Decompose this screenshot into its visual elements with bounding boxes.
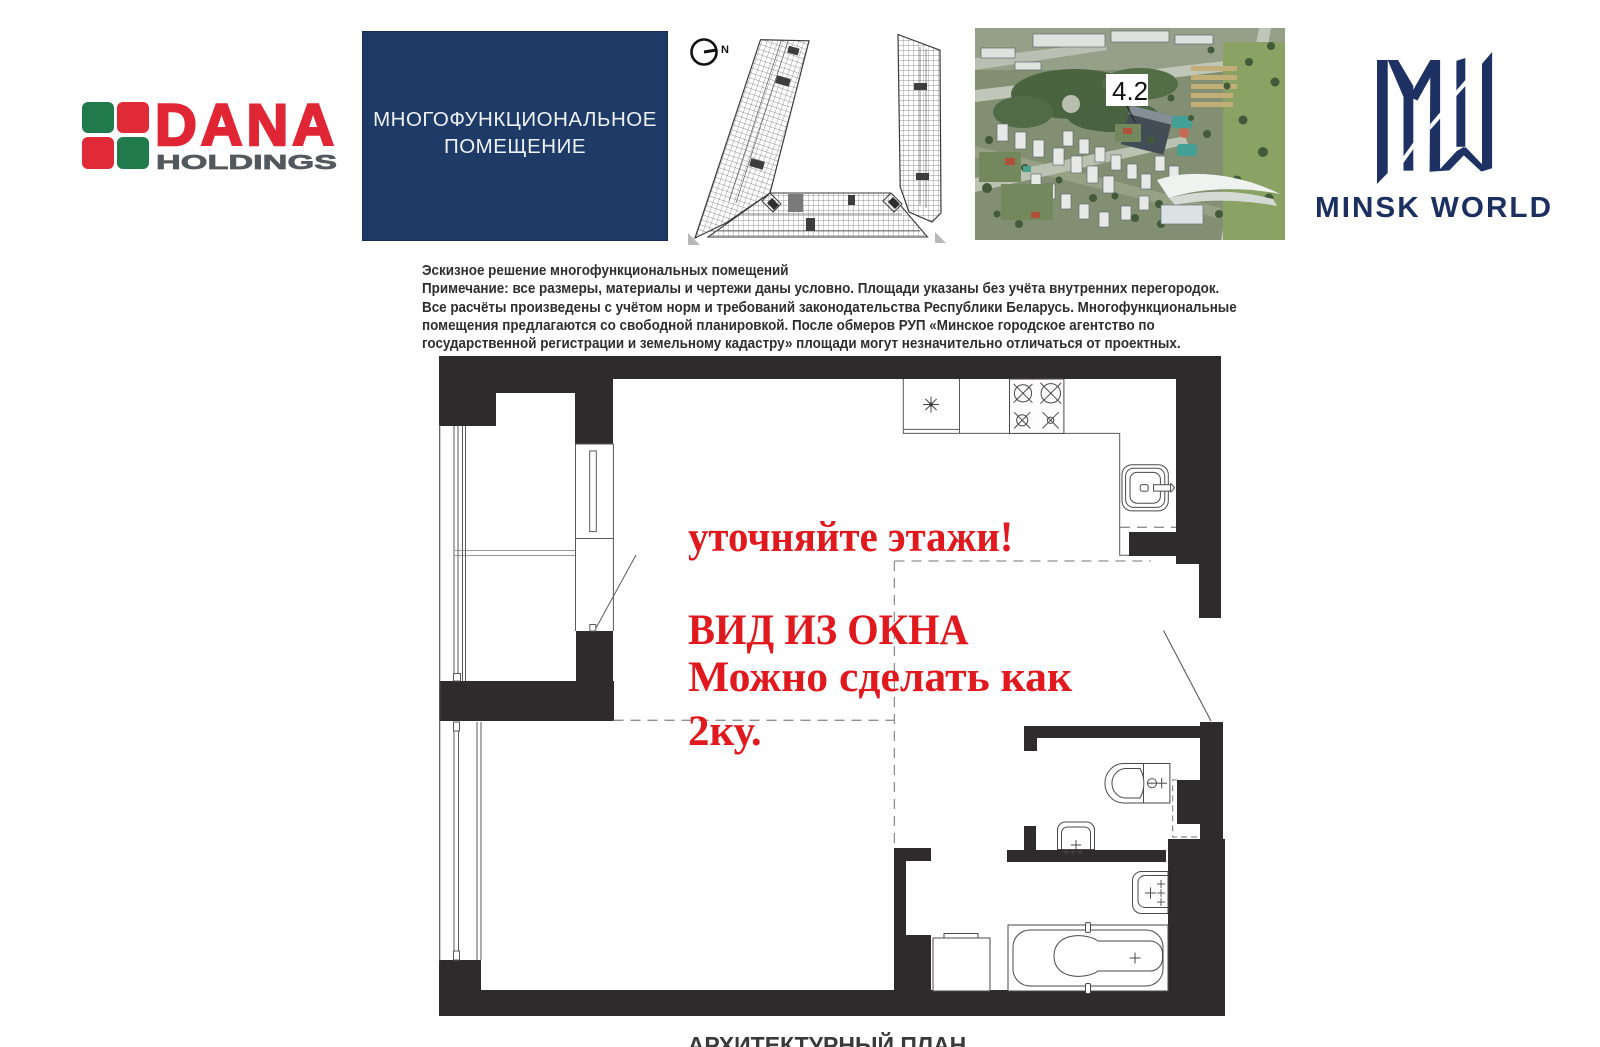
svg-text:4.2: 4.2 xyxy=(1112,76,1148,106)
svg-text:MINSK WORLD: MINSK WORLD xyxy=(1315,192,1553,224)
svg-text:N: N xyxy=(721,44,729,56)
svg-text:HOLDINGS: HOLDINGS xyxy=(156,152,337,171)
svg-text:DANA: DANA xyxy=(155,101,338,158)
